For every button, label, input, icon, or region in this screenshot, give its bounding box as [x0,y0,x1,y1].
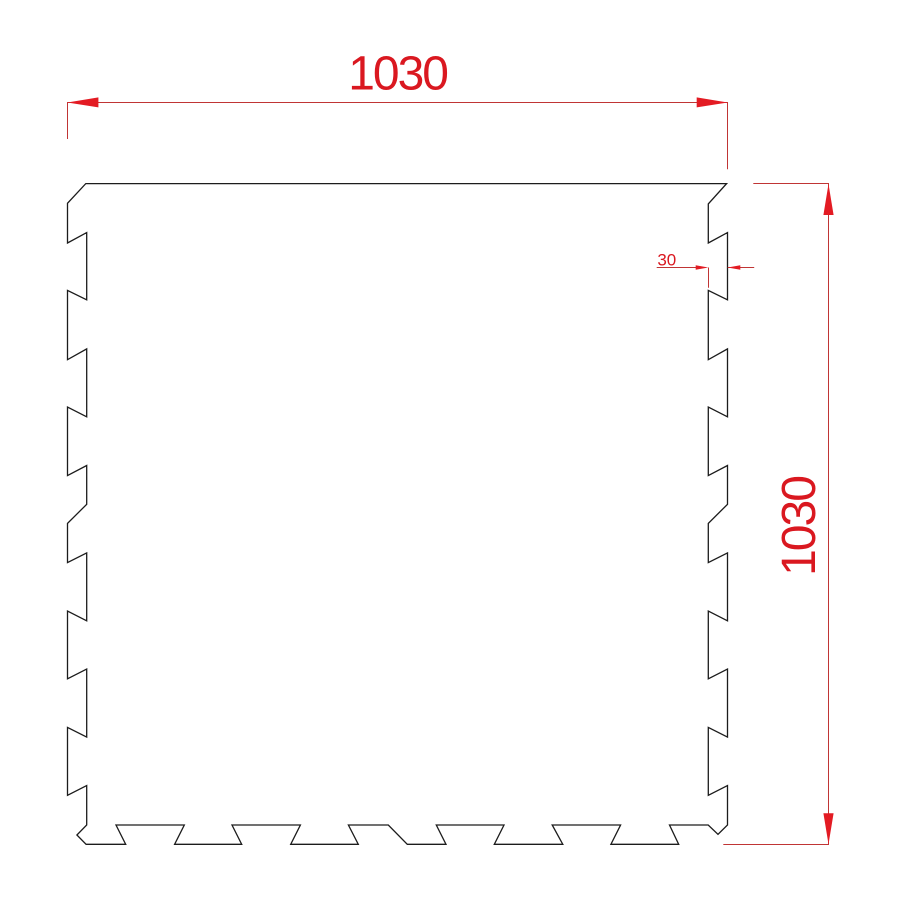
svg-text:1030: 1030 [348,48,447,101]
svg-text:30: 30 [657,251,676,270]
svg-text:1030: 1030 [773,477,826,576]
